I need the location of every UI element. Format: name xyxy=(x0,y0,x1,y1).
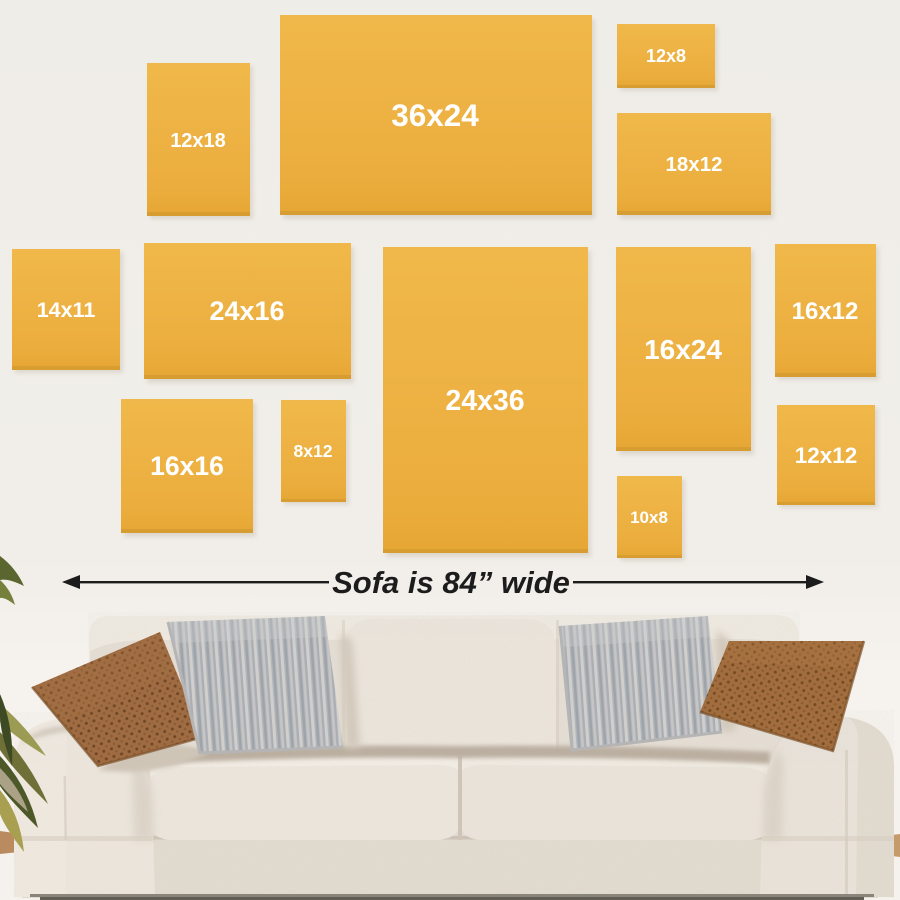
svg-text:14x11: 14x11 xyxy=(37,298,96,322)
svg-text:16x24: 16x24 xyxy=(644,334,722,365)
svg-text:24x36: 24x36 xyxy=(445,385,524,417)
svg-text:12x12: 12x12 xyxy=(795,443,858,468)
svg-text:18x12: 18x12 xyxy=(665,153,722,176)
svg-text:Sofa is 84” wide: Sofa is 84” wide xyxy=(332,565,570,600)
svg-text:8x12: 8x12 xyxy=(294,441,333,461)
svg-text:36x24: 36x24 xyxy=(391,97,479,133)
svg-text:12x18: 12x18 xyxy=(170,130,226,152)
svg-text:16x16: 16x16 xyxy=(150,451,224,481)
svg-text:16x12: 16x12 xyxy=(792,298,859,325)
svg-text:10x8: 10x8 xyxy=(630,508,668,527)
svg-text:24x16: 24x16 xyxy=(209,296,284,326)
svg-text:12x8: 12x8 xyxy=(646,46,686,66)
